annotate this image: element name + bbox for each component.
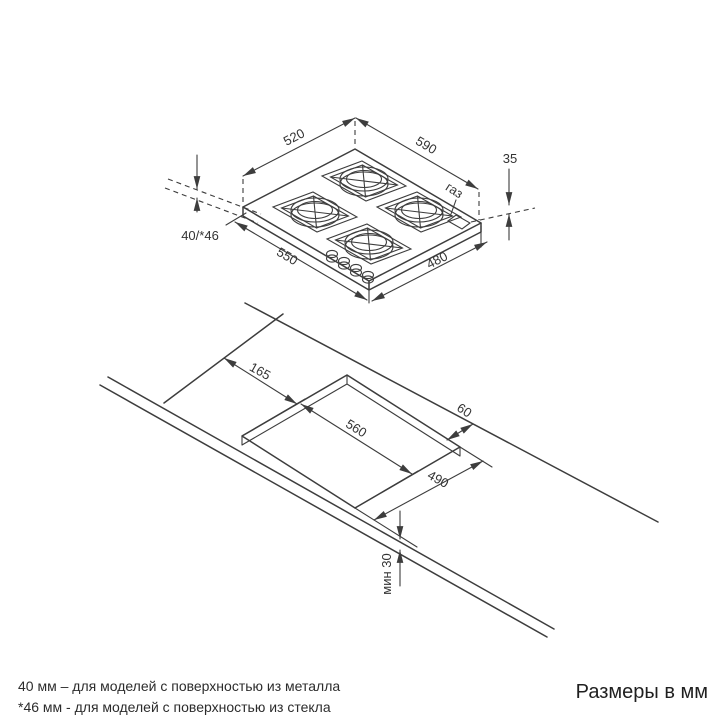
dim-40-46: 40/*46 [165,155,261,243]
dim-165-label: 165 [247,359,273,383]
footnotes: 40 мм – для моделей с поверхностью из ме… [18,676,340,718]
dim-520: 520 [243,118,355,204]
dim-590: 590 [356,118,479,220]
hob-isometric-view: 520 590 газ 35 40/*46 550 [165,118,535,303]
dimension-drawing: 520 590 газ 35 40/*46 550 [0,0,720,720]
countertop-cutout-view: 165 560 490 60 мин 30 [100,303,658,637]
dim-165: 165 [224,358,305,436]
units-label: Размеры в мм [576,681,708,704]
dim-60-label: 60 [454,400,474,420]
dim-560-label: 560 [343,416,369,440]
burner-right [377,192,461,232]
footnote-glass: *46 мм - для моделей с поверхностью из с… [18,697,340,718]
burner-front [327,224,411,264]
dim-40-46-label: 40/*46 [181,228,219,243]
burner-left [273,192,357,232]
dim-60: 60 [447,400,475,440]
burner-back [322,161,406,201]
cutout-rectangle [242,375,460,508]
dim-560: 560 [301,404,418,508]
dim-min-30-label: мин 30 [379,553,394,594]
dim-490-label: 490 [425,467,451,491]
gas-label: газ [443,179,466,201]
installation-diagram-page: 520 590 газ 35 40/*46 550 [0,0,720,720]
dim-480-label: 480 [424,248,450,271]
dim-35-label: 35 [503,151,517,166]
dim-490: 490 [355,447,492,547]
footnote-metal: 40 мм – для моделей с поверхностью из ме… [18,676,340,697]
